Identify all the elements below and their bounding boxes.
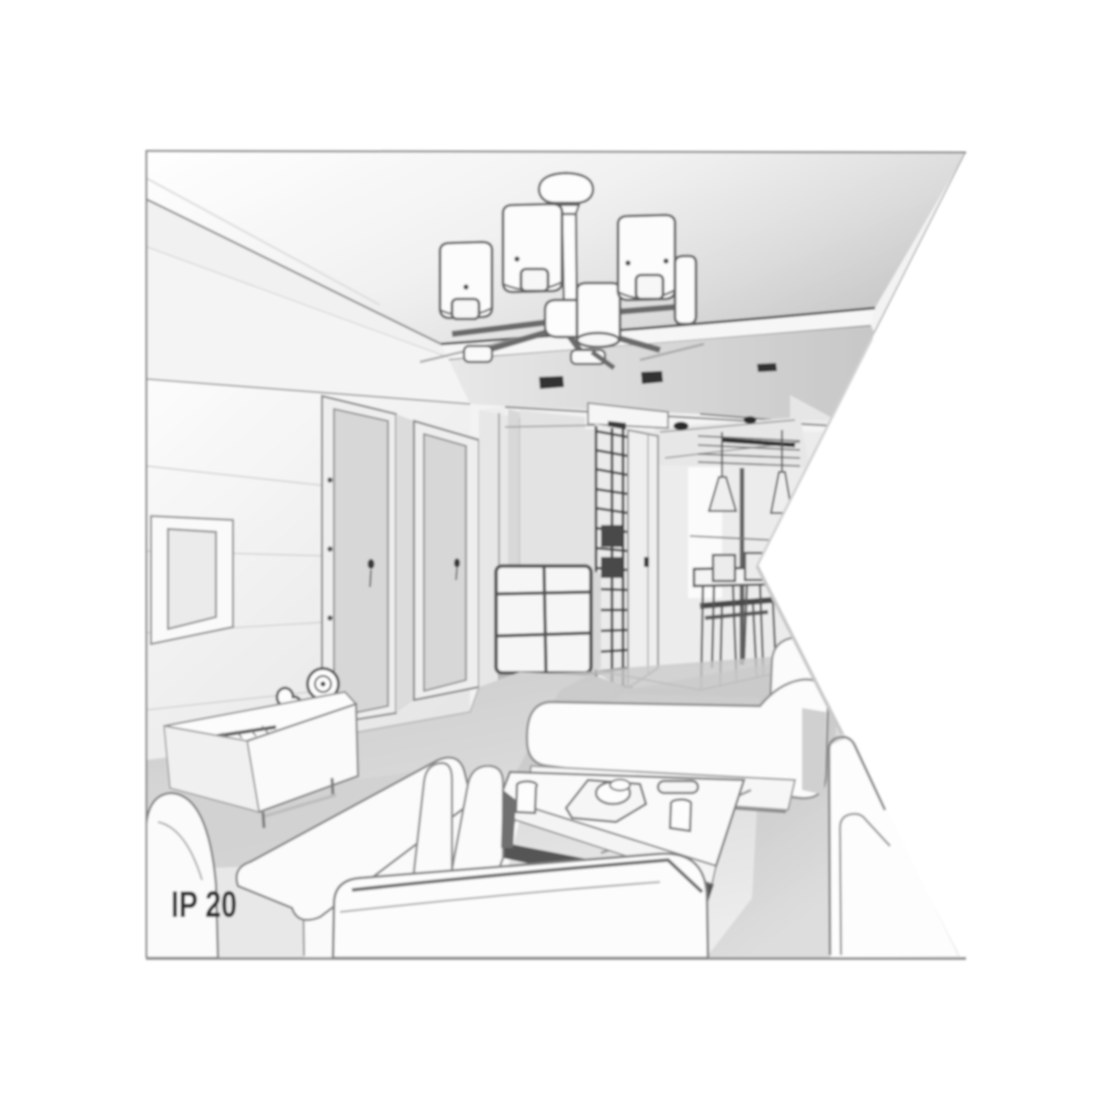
svg-text:IP 20: IP 20 [171, 884, 237, 925]
